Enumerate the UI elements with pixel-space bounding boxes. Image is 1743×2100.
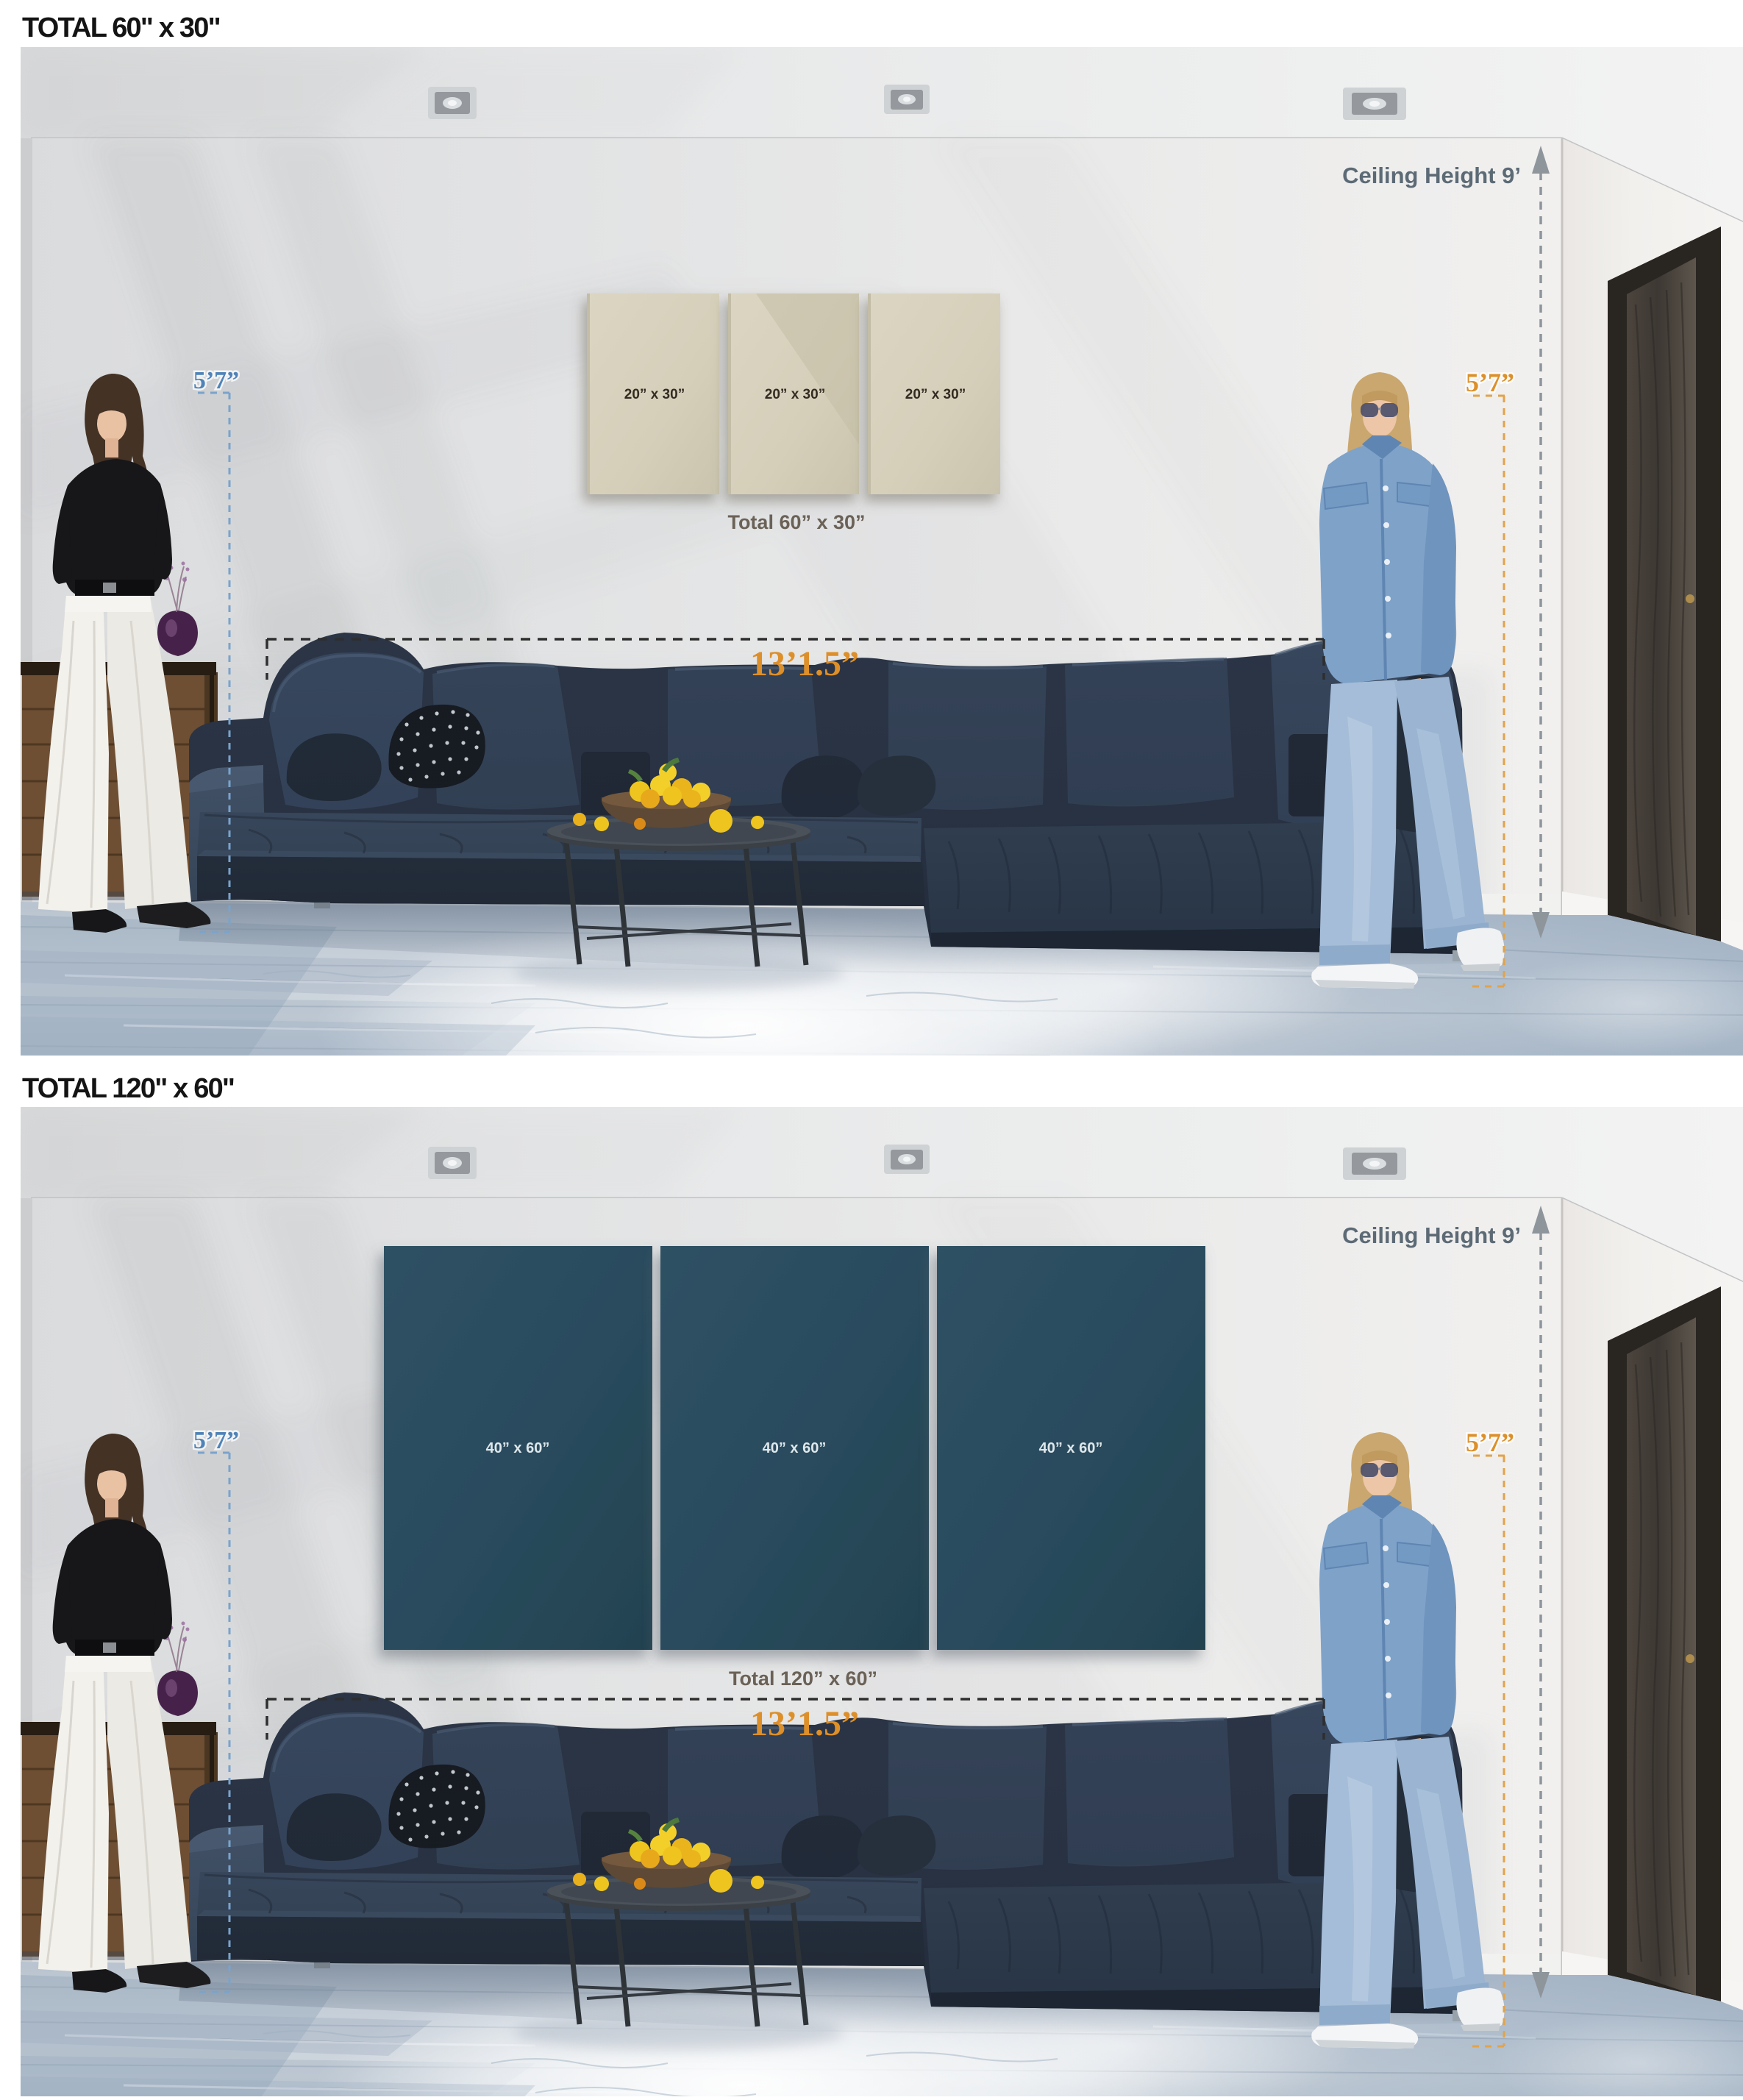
svg-text:40” x 60”: 40” x 60”: [1039, 1440, 1103, 1456]
svg-text:Total 60” x 30”: Total 60” x 30”: [727, 511, 865, 533]
svg-text:20” x 30”: 20” x 30”: [765, 387, 825, 402]
svg-text:20” x 30”: 20” x 30”: [624, 387, 685, 402]
svg-text:Total 120” x 60”: Total 120” x 60”: [729, 1667, 877, 1690]
svg-text:40” x 60”: 40” x 60”: [486, 1440, 550, 1456]
svg-text:20” x 30”: 20” x 30”: [905, 387, 966, 402]
svg-text:40” x 60”: 40” x 60”: [763, 1440, 827, 1456]
